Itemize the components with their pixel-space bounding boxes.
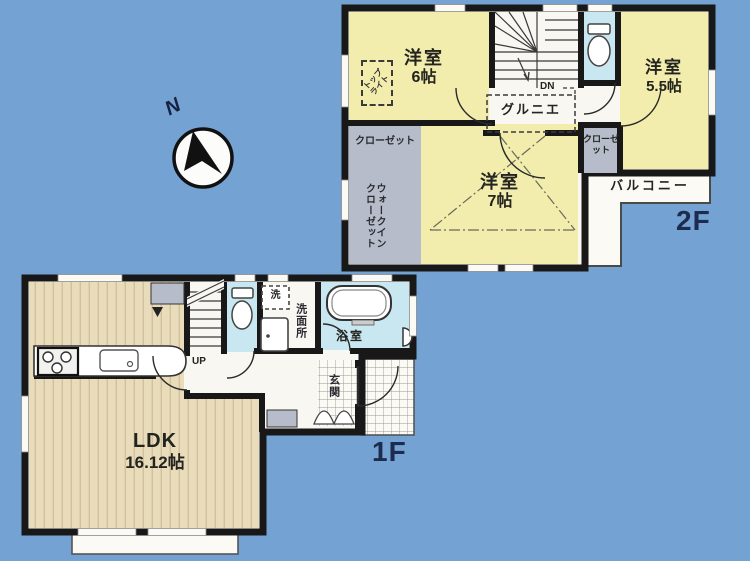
walkin-closet-line1: ウォークイン (374, 172, 385, 260)
closet-right-label: クローゼット (582, 134, 620, 156)
toilet-2f-icon (588, 24, 610, 66)
bathroom-label: 浴室 (336, 330, 364, 344)
floor-1-label: 1F (372, 436, 407, 468)
washing-machine-label: 洗 (266, 290, 285, 302)
stairs-up-label: UP (192, 356, 206, 368)
terrace (72, 534, 238, 554)
kitchen-counter (34, 346, 186, 376)
fridge-space (151, 283, 184, 304)
walkin-closet-floor (349, 164, 421, 264)
sink-icon (100, 350, 138, 371)
closet-left-label: クローゼット (349, 136, 421, 148)
room-55-size: 5.5帖 (620, 78, 708, 95)
room-55-name: 洋室 (620, 58, 708, 78)
washroom-label: 洗面所 (294, 287, 307, 355)
walkin-closet-label: ウォークイン クローゼット (363, 172, 384, 260)
floorplan-page: N 洋室 6帖 トップ ライト クローゼット ウォークイン クローゼット 洋室 … (0, 0, 750, 561)
room-55-label: 洋室 5.5帖 (620, 58, 708, 95)
ldk-name: LDK (75, 430, 235, 453)
toplight-box: トップ ライト (361, 60, 393, 106)
entrance-label: 玄関 (327, 366, 340, 406)
balcony-label: バルコニー (598, 179, 702, 194)
vanity-sink-icon (261, 318, 288, 351)
room-7-name: 洋室 (440, 172, 560, 193)
toilet-1f-icon (232, 288, 253, 329)
ldk-size: 16.12帖 (75, 453, 235, 473)
ldk-label: LDK 16.12帖 (75, 430, 235, 473)
north-compass-icon (174, 129, 232, 187)
floor-1-plan (22, 275, 417, 555)
room-7-label: 洋室 7帖 (440, 172, 560, 211)
grenier-label: グルニエ (487, 103, 575, 118)
stairs-down-label: DN (540, 81, 554, 93)
floor-2-label: 2F (676, 205, 711, 237)
walkin-closet-line2: クローゼット (363, 172, 374, 260)
porch-tile (362, 357, 414, 435)
hall-storage (267, 410, 297, 427)
room-7-size: 7帖 (440, 193, 560, 211)
